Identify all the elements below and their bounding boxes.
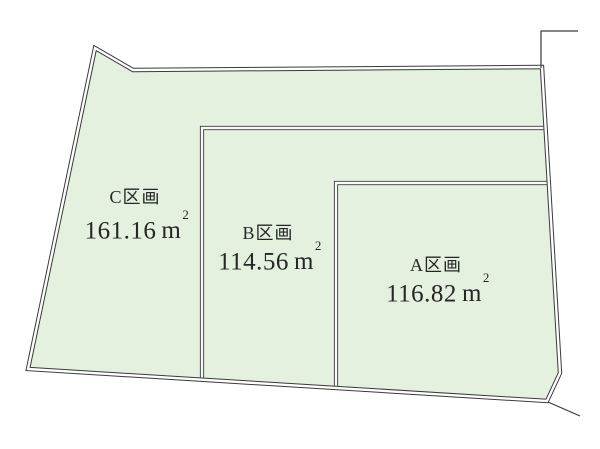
- parcel-b-area: 114.56m2: [218, 249, 322, 274]
- parcel-c-name: C区画: [109, 188, 160, 206]
- parcel-a-name-text: A区画: [410, 255, 462, 275]
- parcel-a-area: 116.82m2: [386, 281, 490, 306]
- parcel-c-name-text: C区画: [109, 187, 160, 207]
- parcel-c-area-exponent: 2: [182, 207, 189, 222]
- parcel-c-area-unit: m: [161, 217, 181, 244]
- land-plot-diagram: C区画 161.16m2 B区画 114.56m2 A区画 116.82m2: [0, 0, 600, 449]
- survey-line-top-right: [541, 31, 578, 68]
- parcel-a-name: A区画: [410, 256, 462, 274]
- survey-line-bottom-right: [548, 402, 580, 416]
- parcel-b-area-value: 114.56: [218, 248, 289, 275]
- parcel-b-area-unit: m: [294, 248, 314, 275]
- parcel-b-name: B区画: [242, 224, 293, 242]
- parcel-c-area-value: 161.16: [85, 217, 157, 244]
- parcel-c-area: 161.16m2: [85, 218, 190, 243]
- parcel-a-area-value: 116.82: [386, 280, 457, 307]
- parcel-a-area-exponent: 2: [483, 270, 490, 285]
- parcel-b-name-text: B区画: [242, 223, 293, 243]
- parcel-b-area-exponent: 2: [315, 238, 322, 253]
- parcel-a-area-unit: m: [462, 280, 482, 307]
